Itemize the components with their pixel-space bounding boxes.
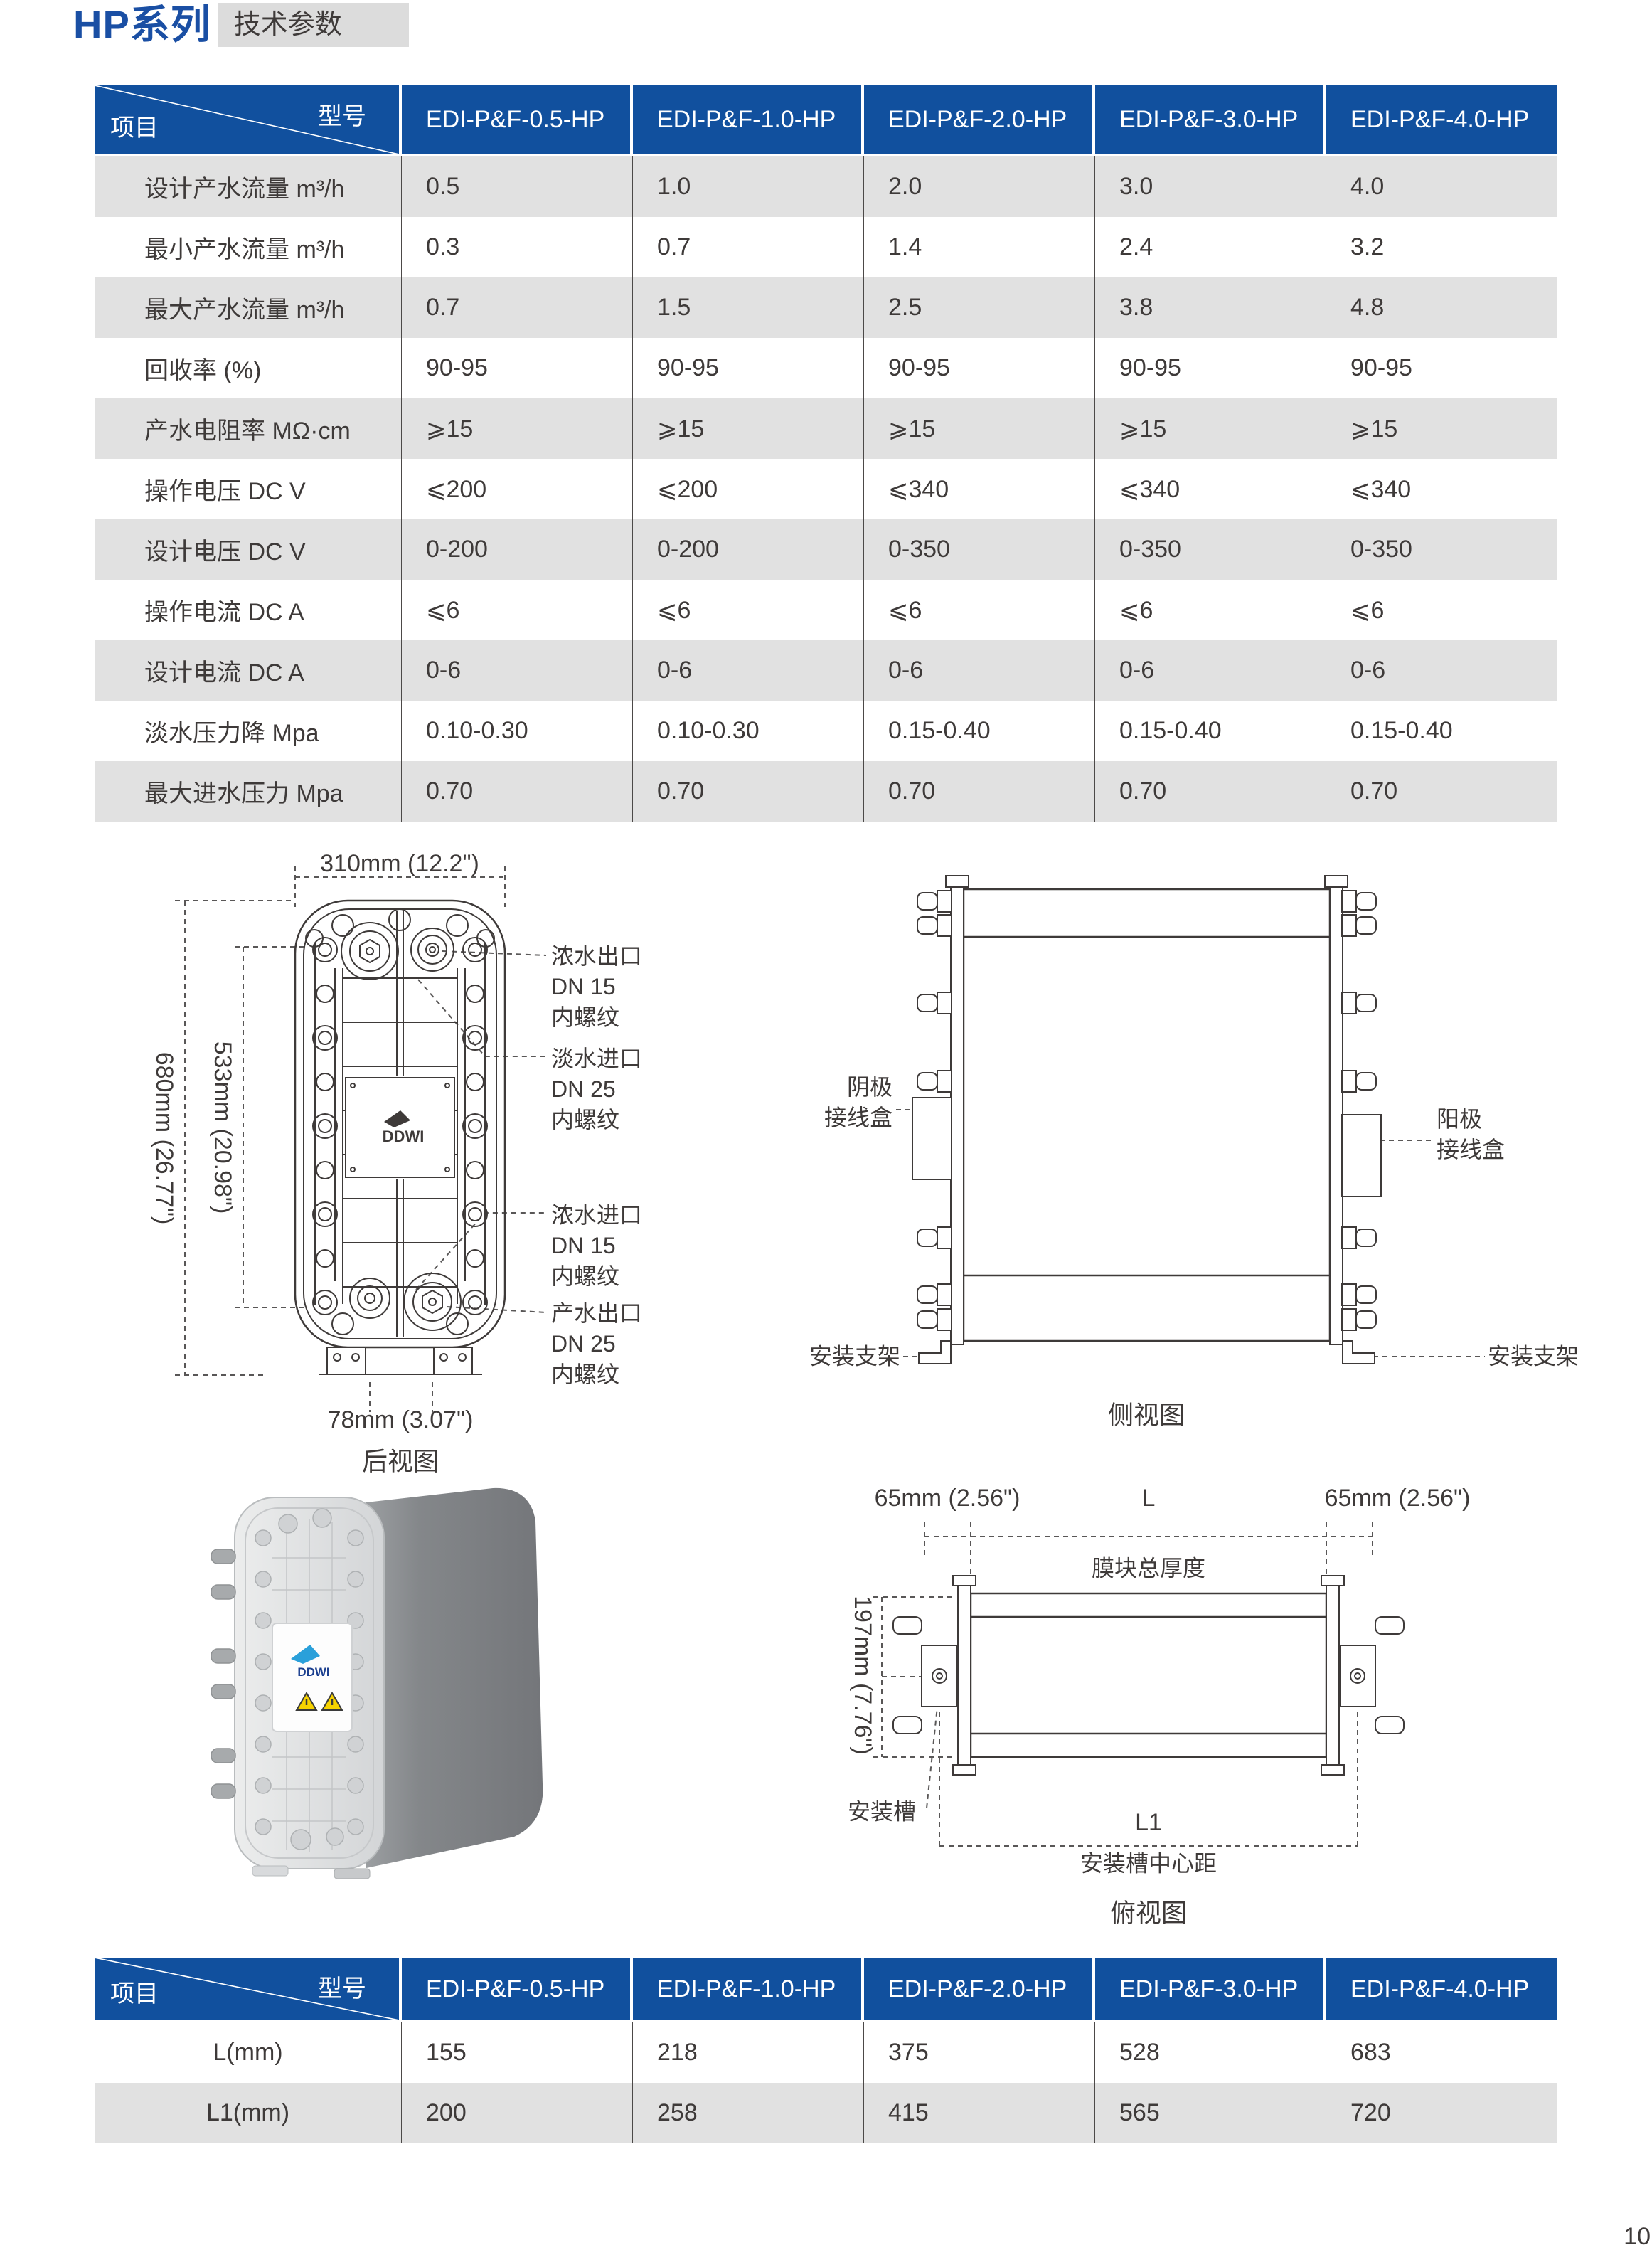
cell-value: ⩽340	[1326, 459, 1557, 519]
cell-value: 3.0	[1095, 156, 1326, 217]
cell-value: 0.70	[402, 761, 633, 822]
table-row: 产水电阻率 MΩ·cm⩾15⩾15⩾15⩾15⩾15	[95, 398, 1557, 459]
row-label: 回收率 (%)	[95, 338, 402, 398]
cell-value: ⩾15	[633, 398, 864, 459]
page-number: 10	[1624, 2223, 1651, 2251]
cell-value: 258	[633, 2083, 864, 2143]
module-body	[366, 1488, 543, 1868]
label-cathode-box: 阴极 接线盒	[824, 1072, 892, 1133]
product-label-plate: DDWI	[272, 1623, 352, 1731]
row-label: 设计电流 DC A	[95, 640, 402, 701]
dimension-table: 型号项目EDI-P&F-0.5-HPEDI-P&F-1.0-HPEDI-P&F-…	[95, 1958, 1557, 2143]
cell-value: 0-6	[864, 640, 1095, 701]
side-module-art	[912, 876, 1381, 1364]
label-product-outlet: 产水出口 DN 25 内螺纹	[551, 1298, 642, 1391]
side-pegs	[211, 1549, 235, 1798]
cell-value: 0-6	[1095, 640, 1326, 701]
row-label: 操作电压 DC V	[95, 459, 402, 519]
cell-value: 0-350	[1095, 519, 1326, 580]
cell-value: 90-95	[1326, 338, 1557, 398]
cell-value: ⩽200	[402, 459, 633, 519]
rear-view-diagram: DDWI 310mm (12.2") 680mm (26.77") 533mm …	[92, 843, 768, 1483]
top-dim-depth: 197mm (7.76")	[846, 1596, 878, 1755]
cell-value: ⩽340	[864, 459, 1095, 519]
column-header: EDI-P&F-3.0-HP	[1095, 85, 1326, 156]
label-concentrate-inlet: 浓水进口 DN 15 内螺纹	[551, 1200, 642, 1293]
rear-view-drawing: DDWI	[92, 843, 768, 1483]
foot	[334, 1869, 370, 1879]
top-view-diagram: 65mm (2.56") L 65mm (2.56") 膜块总厚度 197mm …	[811, 1462, 1579, 1946]
corner-item-label: 项目	[110, 108, 159, 143]
column-header: EDI-P&F-0.5-HP	[402, 1958, 633, 2022]
label-slot-center-distance: 安装槽中心距	[1080, 1848, 1217, 1879]
cell-value: 200	[402, 2083, 633, 2143]
cell-value: 0.10-0.30	[402, 701, 633, 761]
rear-dim-height-inner: 533mm (20.98")	[206, 1041, 238, 1214]
page-title: HP系列	[73, 3, 211, 47]
column-header: EDI-P&F-1.0-HP	[633, 85, 864, 156]
cell-value: 4.0	[1326, 156, 1557, 217]
cell-value: 3.8	[1095, 277, 1326, 338]
cell-value: 4.8	[1326, 277, 1557, 338]
row-label: 操作电流 DC A	[95, 580, 402, 640]
table-row: 设计产水流量 m³/h0.51.02.03.04.0	[95, 156, 1557, 217]
cell-value: 415	[864, 2083, 1095, 2143]
ddwi-logo-text: DDWI	[297, 1665, 329, 1679]
cell-value: 0-6	[633, 640, 864, 701]
cell-value: ⩽200	[633, 459, 864, 519]
corner-item-label: 项目	[110, 1974, 159, 2009]
table-row: L1(mm)200258415565720	[95, 2083, 1557, 2143]
cell-value: 90-95	[864, 338, 1095, 398]
datasheet-page: HP系列 技术参数 型号项目EDI-P&F-0.5-HPEDI-P&F-1.0-…	[0, 0, 1652, 2255]
cell-value: 565	[1095, 2083, 1326, 2143]
row-label: 设计产水流量 m³/h	[95, 156, 402, 217]
column-header: EDI-P&F-4.0-HP	[1326, 85, 1557, 156]
top-view-caption: 俯视图	[1110, 1896, 1187, 1931]
cell-value: 2.4	[1095, 217, 1326, 277]
ddwi-logo-text: DDWI	[383, 1127, 425, 1145]
top-dim-left: 65mm (2.56")	[875, 1482, 1020, 1515]
cell-value: 0.15-0.40	[864, 701, 1095, 761]
cell-value: ⩽6	[1326, 580, 1557, 640]
cell-value: 3.2	[1326, 217, 1557, 277]
cell-value: 1.4	[864, 217, 1095, 277]
cell-value: 0-6	[402, 640, 633, 701]
row-label: 产水电阻率 MΩ·cm	[95, 398, 402, 459]
row-label: 淡水压力降 Mpa	[95, 701, 402, 761]
cell-value: 0-350	[1326, 519, 1557, 580]
cell-value: 218	[633, 2022, 864, 2083]
cell-value: 0-200	[402, 519, 633, 580]
table-row: 最大产水流量 m³/h0.71.52.53.84.8	[95, 277, 1557, 338]
cell-value: 1.0	[633, 156, 864, 217]
column-header: EDI-P&F-2.0-HP	[864, 85, 1095, 156]
label-mount-bracket-right: 安装支架	[1488, 1341, 1579, 1371]
cell-value: 0-6	[1326, 640, 1557, 701]
table-row: 最小产水流量 m³/h0.30.71.42.43.2	[95, 217, 1557, 277]
column-header: EDI-P&F-4.0-HP	[1326, 1958, 1557, 2022]
corner-cell: 型号项目	[95, 1958, 402, 2022]
cell-value: ⩽6	[633, 580, 864, 640]
cell-value: ⩽6	[864, 580, 1095, 640]
product-photo-art: DDWI	[196, 1473, 608, 1885]
table-row: 淡水压力降 Mpa0.10-0.300.10-0.300.15-0.400.15…	[95, 701, 1557, 761]
cell-value: 90-95	[633, 338, 864, 398]
cell-value: 90-95	[1095, 338, 1326, 398]
side-view-diagram: 阴极 接线盒 阳极 接线盒 安装支架 安装支架 侧视图	[811, 850, 1579, 1440]
foot	[252, 1866, 288, 1876]
column-header: EDI-P&F-1.0-HP	[633, 1958, 864, 2022]
cell-value: 0.3	[402, 217, 633, 277]
table-row: 操作电压 DC V⩽200⩽200⩽340⩽340⩽340	[95, 459, 1557, 519]
cell-value: 0.7	[633, 217, 864, 277]
cell-value: ⩽340	[1095, 459, 1326, 519]
corner-model-label: 型号	[318, 97, 366, 132]
cell-value: 0.15-0.40	[1095, 701, 1326, 761]
row-label: 设计电压 DC V	[95, 519, 402, 580]
cell-value: 0.7	[402, 277, 633, 338]
cell-value: ⩾15	[402, 398, 633, 459]
cell-value: 0.10-0.30	[633, 701, 864, 761]
table-row: 设计电流 DC A0-60-60-60-60-6	[95, 640, 1557, 701]
cell-value: ⩽6	[402, 580, 633, 640]
series-suffix: 系列	[130, 2, 211, 47]
column-header: EDI-P&F-3.0-HP	[1095, 1958, 1326, 2022]
column-header: EDI-P&F-0.5-HP	[402, 85, 633, 156]
label-anode-box: 阳极 接线盒	[1437, 1104, 1505, 1165]
top-module-art	[893, 1576, 1404, 1775]
cell-value: ⩾15	[1326, 398, 1557, 459]
cell-value: 0.70	[1095, 761, 1326, 822]
cell-value: 2.0	[864, 156, 1095, 217]
cell-value: 0.5	[402, 156, 633, 217]
label-dilute-inlet: 淡水进口 DN 25 内螺纹	[551, 1044, 642, 1136]
header-row: 型号项目EDI-P&F-0.5-HPEDI-P&F-1.0-HPEDI-P&F-…	[95, 1958, 1557, 2022]
label-mount-slot: 安装槽	[848, 1796, 916, 1827]
row-label: 最大进水压力 Mpa	[95, 761, 402, 822]
table-row: 操作电流 DC A⩽6⩽6⩽6⩽6⩽6	[95, 580, 1557, 640]
cell-value: ⩾15	[1095, 398, 1326, 459]
spec-table: 型号项目EDI-P&F-0.5-HPEDI-P&F-1.0-HPEDI-P&F-…	[95, 85, 1557, 822]
rear-dim-ports: 78mm (3.07")	[328, 1404, 474, 1437]
page-header: HP系列 技术参数	[73, 3, 409, 47]
rear-dim-width: 310mm (12.2")	[320, 848, 479, 881]
series-name: HP	[73, 2, 130, 47]
corner-cell: 型号项目	[95, 85, 402, 156]
cell-value: 155	[402, 2022, 633, 2083]
cell-value: 0.70	[633, 761, 864, 822]
row-label: L(mm)	[95, 2022, 402, 2083]
label-mount-bracket-left: 安装支架	[809, 1341, 900, 1371]
cell-value: 0-350	[864, 519, 1095, 580]
table-row: 回收率 (%)90-9590-9590-9590-9590-95	[95, 338, 1557, 398]
side-leader-lines	[896, 1110, 1485, 1357]
label-concentrate-outlet: 浓水出口 DN 15 内螺纹	[551, 941, 642, 1034]
table-row: 设计电压 DC V0-2000-2000-3500-3500-350	[95, 519, 1557, 580]
top-dim-right: 65mm (2.56")	[1325, 1482, 1471, 1515]
top-dim-l1: L1	[1135, 1807, 1162, 1840]
cell-value: 90-95	[402, 338, 633, 398]
section-badge: 技术参数	[218, 3, 409, 47]
row-label: L1(mm)	[95, 2083, 402, 2143]
cell-value: 375	[864, 2022, 1095, 2083]
cell-value: ⩽6	[1095, 580, 1326, 640]
header-row: 型号项目EDI-P&F-0.5-HPEDI-P&F-1.0-HPEDI-P&F-…	[95, 85, 1557, 156]
product-photo: DDWI	[196, 1473, 608, 1885]
cell-value: 0.70	[1326, 761, 1557, 822]
cell-value: 0-200	[633, 519, 864, 580]
cell-value: 720	[1326, 2083, 1557, 2143]
label-stack-thickness: 膜块总厚度	[1092, 1553, 1205, 1583]
cell-value: 0.70	[864, 761, 1095, 822]
table-row: L(mm)155218375528683	[95, 2022, 1557, 2083]
cell-value: 1.5	[633, 277, 864, 338]
column-header: EDI-P&F-2.0-HP	[864, 1958, 1095, 2022]
cell-value: 2.5	[864, 277, 1095, 338]
cell-value: 0.15-0.40	[1326, 701, 1557, 761]
row-label: 最大产水流量 m³/h	[95, 277, 402, 338]
cell-value: 528	[1095, 2022, 1326, 2083]
rear-dim-height-outer: 680mm (26.77")	[147, 1052, 180, 1225]
cell-value: 683	[1326, 2022, 1557, 2083]
cell-value: ⩾15	[864, 398, 1095, 459]
top-dim-l: L	[1142, 1482, 1156, 1515]
side-view-caption: 侧视图	[1108, 1399, 1185, 1433]
corner-model-label: 型号	[318, 1969, 366, 2004]
row-label: 最小产水流量 m³/h	[95, 217, 402, 277]
table-row: 最大进水压力 Mpa0.700.700.700.700.70	[95, 761, 1557, 822]
